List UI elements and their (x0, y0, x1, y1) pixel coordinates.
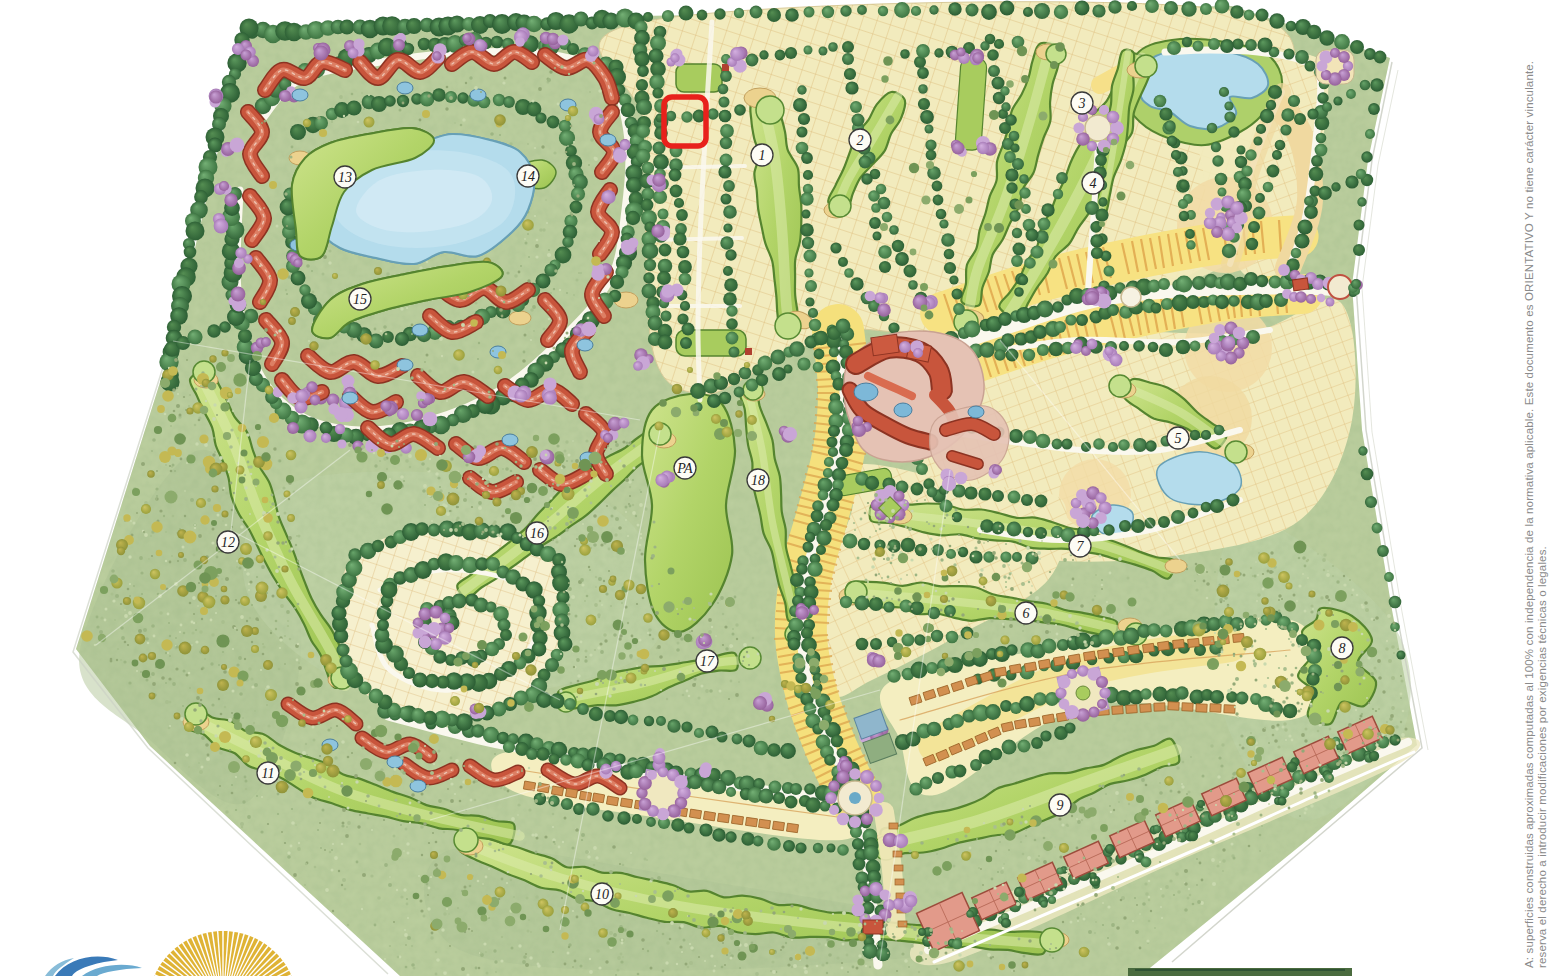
svg-text:11: 11 (262, 766, 275, 781)
svg-text:14: 14 (521, 169, 535, 184)
svg-text:17: 17 (700, 654, 715, 669)
svg-text:4: 4 (1090, 176, 1097, 191)
svg-text:16: 16 (530, 526, 544, 541)
svg-text:15: 15 (353, 292, 367, 307)
svg-text:PA: PA (676, 461, 693, 476)
svg-text:A: superficies construidas apr: A: superficies construidas aproximadas c… (1523, 61, 1535, 968)
svg-text:2: 2 (857, 133, 864, 148)
svg-text:5: 5 (1175, 431, 1182, 446)
svg-text:12: 12 (221, 535, 235, 550)
svg-text:10: 10 (595, 887, 609, 902)
svg-text:18: 18 (751, 473, 765, 488)
svg-text:13: 13 (338, 170, 352, 185)
svg-text:9: 9 (1057, 798, 1064, 813)
svg-text:8: 8 (1339, 641, 1346, 656)
svg-text:7: 7 (1077, 539, 1085, 554)
svg-text:3: 3 (1078, 96, 1086, 111)
svg-text:6: 6 (1023, 606, 1030, 621)
svg-text:reserva el derecho a introduci: reserva el derecho a introducir modifica… (1536, 546, 1548, 968)
svg-text:1: 1 (759, 148, 766, 163)
